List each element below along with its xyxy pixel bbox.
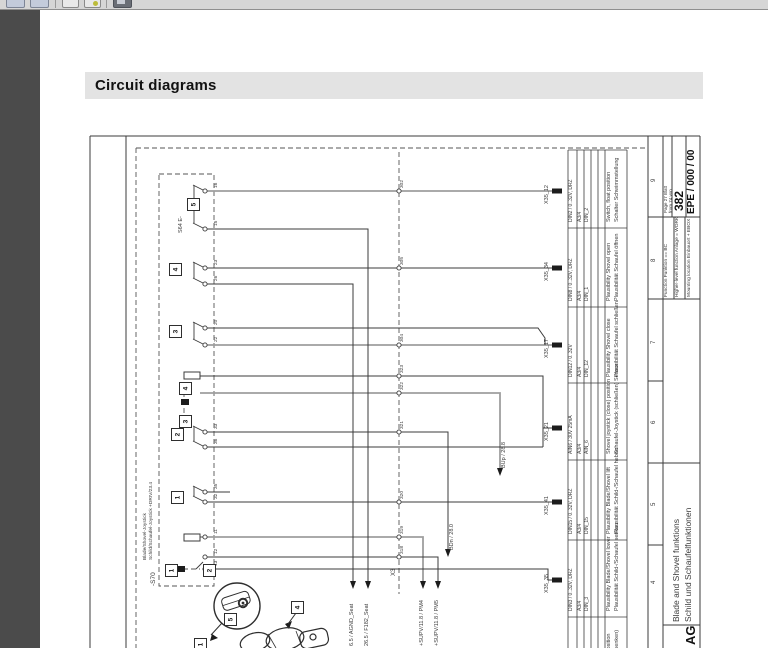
x3-pin [397, 555, 401, 559]
switch-contact [203, 567, 207, 571]
x3-pin-number: 322 [401, 382, 406, 390]
snapshot-icon[interactable] [113, 0, 132, 8]
switch-s64e-label: S64 E- [179, 216, 185, 233]
connector-x3-label: X3 [391, 569, 397, 576]
io-module: A3/4 [578, 212, 583, 222]
switch-pin-number: 36 [215, 439, 220, 444]
zone-number: 9 [651, 179, 657, 182]
sheet-frame [90, 136, 700, 648]
switch-pin-number: 13 [215, 561, 220, 566]
boxed-number-1: 1 [171, 491, 184, 504]
x3-pin-number: 319 [401, 526, 406, 534]
boxed-number-2: 2 [203, 564, 216, 577]
x35-pin [552, 578, 562, 583]
x3-pin-number: 302 [401, 180, 406, 188]
switch-pin-number: 11 [215, 529, 220, 534]
layout-icon[interactable] [30, 0, 49, 8]
offpage-arrows [210, 468, 503, 641]
dashed-boundaries [136, 148, 645, 648]
boxed-number-4: 4 [179, 382, 192, 395]
x35-connector-label: X35_35 [545, 574, 551, 593]
boxed-number-3: 3 [179, 415, 192, 428]
wires-gray [200, 191, 554, 583]
switch-contact [203, 490, 207, 494]
io-module: A3/4 [578, 367, 583, 377]
io-description-en: Blade joystick (lower) position [607, 634, 613, 648]
switch-pin-number: 33 [215, 424, 220, 429]
rotate-left-icon[interactable] [62, 0, 79, 8]
switch-pin-number: 32 [215, 494, 220, 499]
io-description-de: Plausibilität Schild-/Schaufel heben [615, 448, 621, 534]
zone-number: 4 [651, 581, 657, 584]
io-signal-spec: AIN6 / 30V 25mA [569, 415, 574, 454]
io-description-de: Plausibilität Schild-/Schaufel senken [615, 523, 621, 611]
io-channel: DIN_1 [585, 287, 590, 301]
io-description-en: Switch, float position [607, 172, 613, 222]
switch-contact [203, 343, 207, 347]
tb-title-en: Blade and Shovel funktions [672, 519, 681, 622]
zone-number: 7 [651, 341, 657, 344]
x3-pin [397, 266, 401, 270]
io-description-de: Schalter Schwimmstellung [615, 158, 621, 223]
switch-pin-number: 22 [215, 337, 220, 342]
io-description-de: Schaufel-Joystick (schließen) Sensor [615, 364, 621, 454]
switch-contact [203, 266, 207, 270]
switch-contact [203, 430, 207, 434]
page-icon[interactable] [6, 0, 25, 8]
boxed-number-1: 1 [165, 564, 178, 577]
tb-title-de: Schild und Schaufelfunktionen [684, 508, 693, 622]
wire-destination-ref: BDn / 28.0 [450, 524, 456, 550]
x3-pin [397, 374, 401, 378]
component-name-de: Schild/Schaufel-Joystick +DRIV/23.4 [150, 482, 155, 560]
x3-pin-number: 321 [401, 421, 406, 429]
x35-pin [552, 426, 562, 431]
switch-contact [203, 326, 207, 330]
toolbar-separator [55, 0, 56, 8]
io-channel: DIN_12 [585, 360, 590, 377]
switch-levers [193, 185, 205, 569]
x35-pin [552, 266, 562, 271]
io-description-en: Plausibility Shovel close [607, 318, 613, 377]
wire-destination-ref: 26.5 / F182_Seat [365, 604, 371, 646]
io-channel: DIN_2 [585, 208, 590, 222]
x35-connector-label: X35_21 [545, 422, 551, 441]
switch-pin-number: 20 [215, 320, 220, 325]
x3-pin [397, 189, 401, 193]
switch-pin-number: 16 [215, 183, 220, 188]
boxed-number-5: 5 [187, 198, 200, 211]
wire-destination-ref: 6.5 / AGND_Seat [350, 604, 356, 646]
tb-higher-function: Higher-level function Anlage = WORK [676, 217, 681, 297]
x3-pin-number: 304 [401, 334, 406, 342]
zone-number: 5 [651, 503, 657, 506]
component-s70-label: -S70 [151, 572, 158, 586]
io-description-en: Shovel joystick (close) position [607, 379, 613, 454]
io-signal-spec: DIN15 / 0..32V, DRZ [569, 489, 574, 534]
tb-sheet-number: 382 [673, 191, 685, 211]
switch-pin-number: 12 [215, 549, 220, 554]
io-description-en: Plausibility Blade/Shovel lift [607, 467, 613, 534]
switch-contact [203, 555, 207, 559]
io-description-de: Plausibilität Schaufel öffnen [615, 234, 621, 301]
x35-pin [552, 189, 562, 194]
x35-pin [552, 500, 562, 505]
component-name-en: Blade/Shovel-Joystick [144, 513, 149, 560]
io-module: A3/4 [578, 601, 583, 611]
x3-pin-number: 323 [401, 365, 406, 373]
tb-page: Page 27 Blatt [664, 186, 669, 213]
boxed-number-1: 1 [194, 638, 207, 648]
io-signal-spec: DIN2 / 0..32V, DRZ [569, 179, 574, 222]
pdf-viewer-window: Circuit diagrams [0, 0, 768, 648]
switch-contact [203, 189, 207, 193]
x3-pin [397, 500, 401, 504]
switch-pin-number: 15 [215, 221, 220, 226]
switch-pin-number: 26 [215, 276, 220, 281]
io-signal-spec: DIN12 / 0..32V [569, 344, 574, 377]
x3-pin-number: 320 [401, 491, 406, 499]
switch-contact [203, 227, 207, 231]
wires-dark [200, 229, 554, 583]
x35-connector-label: X35_12 [545, 185, 551, 204]
io-table-grid [568, 150, 627, 648]
switch-contact [203, 282, 207, 286]
io-module: A3/4 [578, 444, 583, 454]
tool-highlight-dot [93, 1, 98, 6]
io-channel: DIN_3 [585, 597, 590, 611]
joystick-s70-boundary [159, 174, 214, 586]
x3-pin [397, 391, 401, 395]
x3-pin-number: 305 [401, 257, 406, 265]
x3-pin [397, 430, 401, 434]
boxed-number-4: 4 [169, 263, 182, 276]
viewer-toolbar [0, 0, 768, 10]
x3-pin-number: 318 [401, 546, 406, 554]
io-module: A3/4 [578, 524, 583, 534]
potentiometers [177, 372, 200, 572]
boxed-number-2: 2 [171, 428, 184, 441]
wire-destination-ref: +SUPV/11.8 / PM5 [435, 600, 441, 646]
tb-doc-code: EPE / 000 / 00 [687, 150, 697, 215]
io-channel: DIN_15 [585, 517, 590, 534]
tb-function: Function Funktion == BC [665, 244, 670, 297]
io-description-en: Plausibility Blade/Shovel lower [607, 536, 613, 611]
generated-pins [203, 189, 562, 583]
io-description-de: Plausibilität Schaufel schließen [615, 301, 621, 377]
section-heading-bar: Circuit diagrams [85, 72, 703, 99]
io-signal-spec: DIN8 / 0..32V, DRZ [569, 258, 574, 301]
x3-pin [397, 535, 401, 539]
boxed-number-4: 4 [291, 601, 304, 614]
switch-pin-number: 35 [215, 484, 220, 489]
joystick-illustration [211, 583, 330, 648]
zone-number: 8 [651, 259, 657, 262]
x35-pin [552, 343, 562, 348]
io-description-en: Plausibility Shovel open [607, 243, 613, 301]
boxed-number-5: 5 [224, 613, 237, 626]
x35-connector-label: X35_17 [545, 339, 551, 358]
boxed-number-3: 3 [169, 325, 182, 338]
tb-from: from 74 von [669, 189, 674, 213]
toolbar-separator [106, 0, 107, 8]
x35-connector-label: X35_41 [545, 496, 551, 515]
io-description-de: Schild-Joystick (heben/senken) [615, 630, 621, 648]
zone-number: 6 [651, 421, 657, 424]
page-title: Circuit diagrams [85, 77, 217, 94]
tb-company: AG [684, 626, 697, 646]
io-signal-spec: DIN3 / 0..32V, DRZ [569, 568, 574, 611]
x35-connector-label: X35_34 [545, 262, 551, 281]
title-block-frame [648, 136, 700, 648]
switch-contact [203, 500, 207, 504]
switch-contact [203, 535, 207, 539]
wire-destination-ref: +SUPV/11.8 / PM4 [420, 600, 426, 646]
viewer-background [0, 10, 40, 648]
io-module: A3/4 [578, 291, 583, 301]
tb-mounting-location: Mounting location Einbauort + EBOX [688, 219, 693, 297]
io-channel: AIN_6 [585, 440, 590, 454]
switch-contact [203, 445, 207, 449]
wire-destination-ref: BUp / 28.8 [502, 442, 508, 468]
x3-pin [397, 343, 401, 347]
switch-pin-number: 23 [215, 260, 220, 265]
